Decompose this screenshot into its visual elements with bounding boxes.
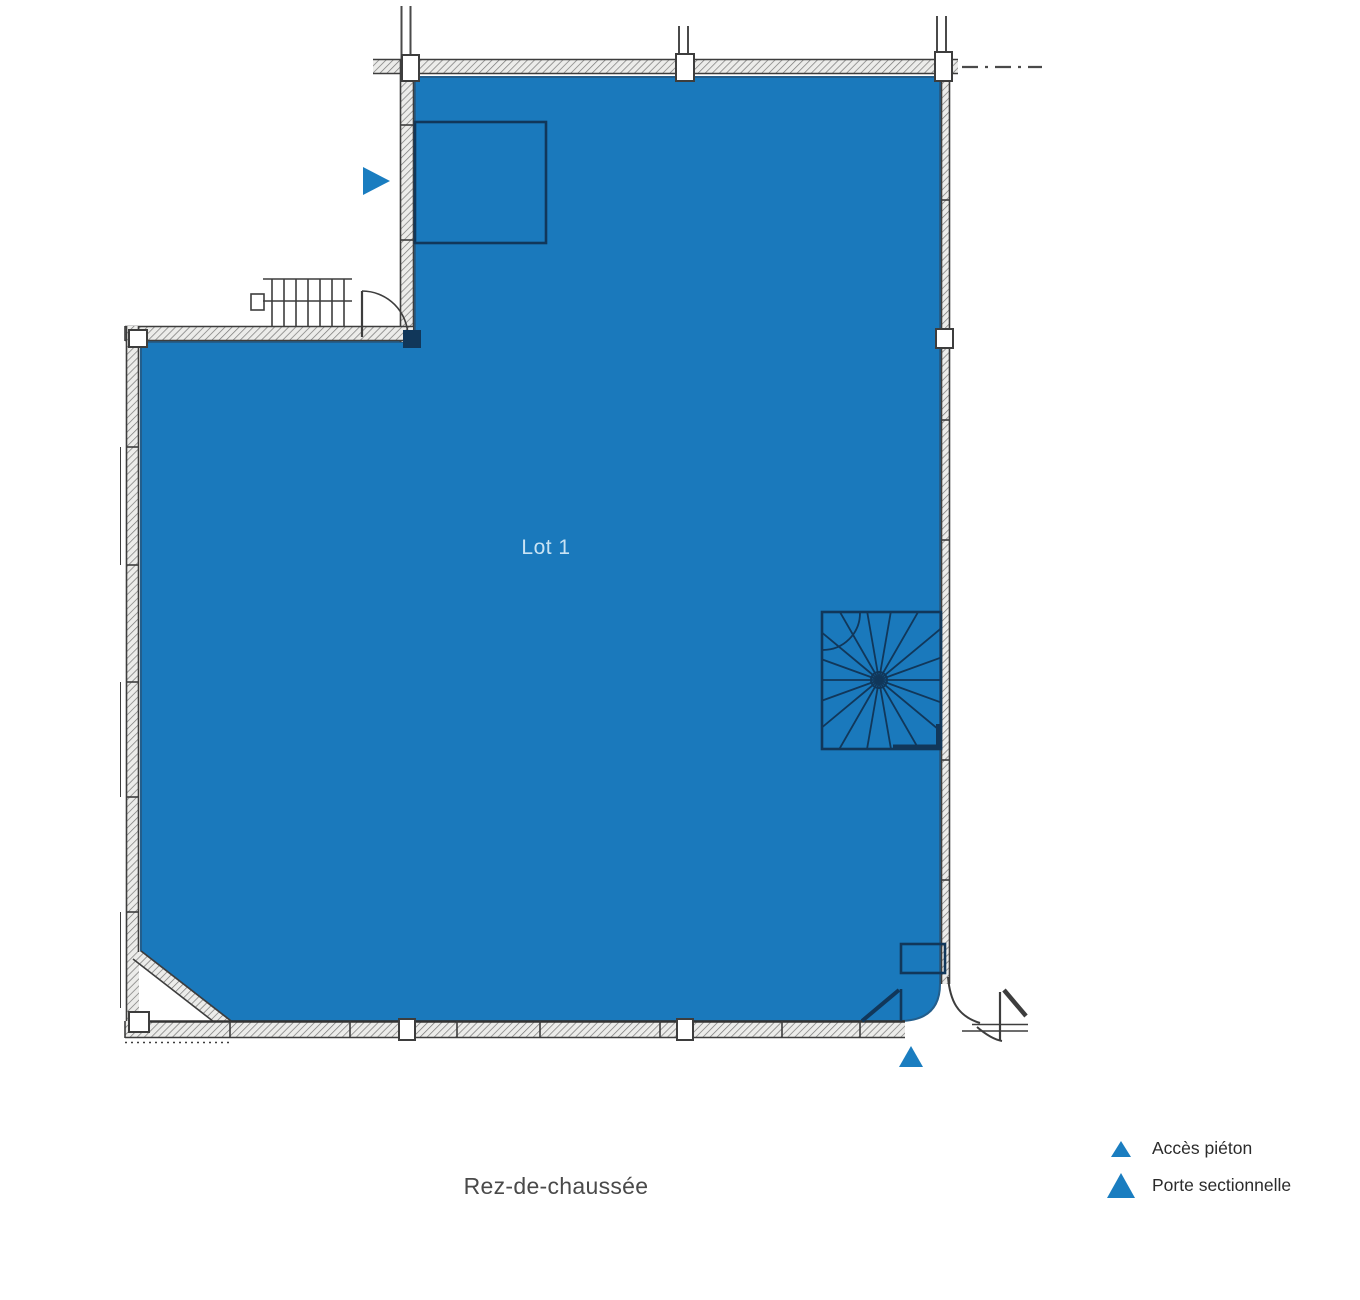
legend-label: Porte sectionnelle <box>1152 1175 1291 1196</box>
legend-item-pedestrian-access: Accès piéton <box>1104 1138 1291 1159</box>
legend-label: Accès piéton <box>1152 1138 1252 1159</box>
pedestrian-access-marker <box>899 1046 923 1067</box>
floor-plan-page: Lot 1 Rez-de-chaussée Accès piéton Porte… <box>0 0 1360 1300</box>
exterior-door-leaf <box>1004 990 1026 1016</box>
sectional-door-triangle-icon <box>1104 1172 1138 1199</box>
legend: Accès piéton Porte sectionnelle <box>1104 1138 1291 1199</box>
corner-column <box>403 330 421 348</box>
exterior-doorway <box>948 977 1028 1041</box>
lot-label: Lot 1 <box>471 536 621 560</box>
sectional-door-marker <box>363 167 390 195</box>
entrance-stairs <box>251 279 352 326</box>
floor-plan-drawing <box>0 0 1360 1300</box>
pedestrian-access-triangle-icon <box>1104 1140 1138 1158</box>
floor-caption: Rez-de-chaussée <box>406 1173 706 1200</box>
legend-item-sectional-door: Porte sectionnelle <box>1104 1172 1291 1199</box>
